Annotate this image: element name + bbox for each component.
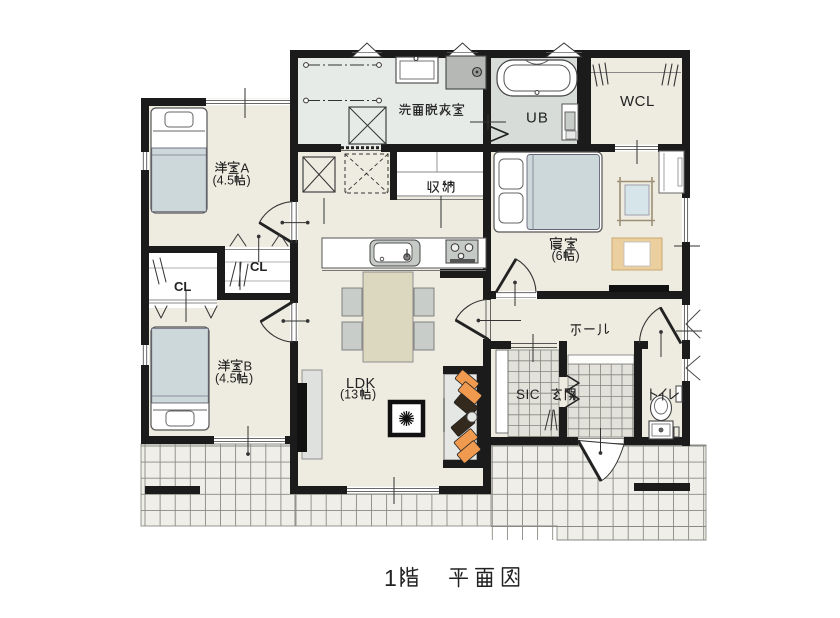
svg-text:CL: CL — [174, 279, 191, 294]
svg-text:SIC: SIC — [516, 387, 540, 402]
svg-text:): ) — [247, 174, 251, 188]
svg-text:CL: CL — [250, 259, 267, 274]
svg-text:UB: UB — [526, 110, 549, 127]
svg-text:(4.5: (4.5 — [213, 174, 235, 188]
svg-text:(13: (13 — [340, 388, 358, 402]
svg-text:): ) — [249, 372, 253, 386]
svg-text:): ) — [576, 249, 580, 263]
svg-text:WCL: WCL — [620, 93, 655, 110]
svg-text:1: 1 — [384, 565, 397, 591]
svg-text:(6: (6 — [552, 249, 563, 263]
svg-text:(4.5: (4.5 — [215, 372, 237, 386]
svg-text:): ) — [372, 388, 376, 402]
